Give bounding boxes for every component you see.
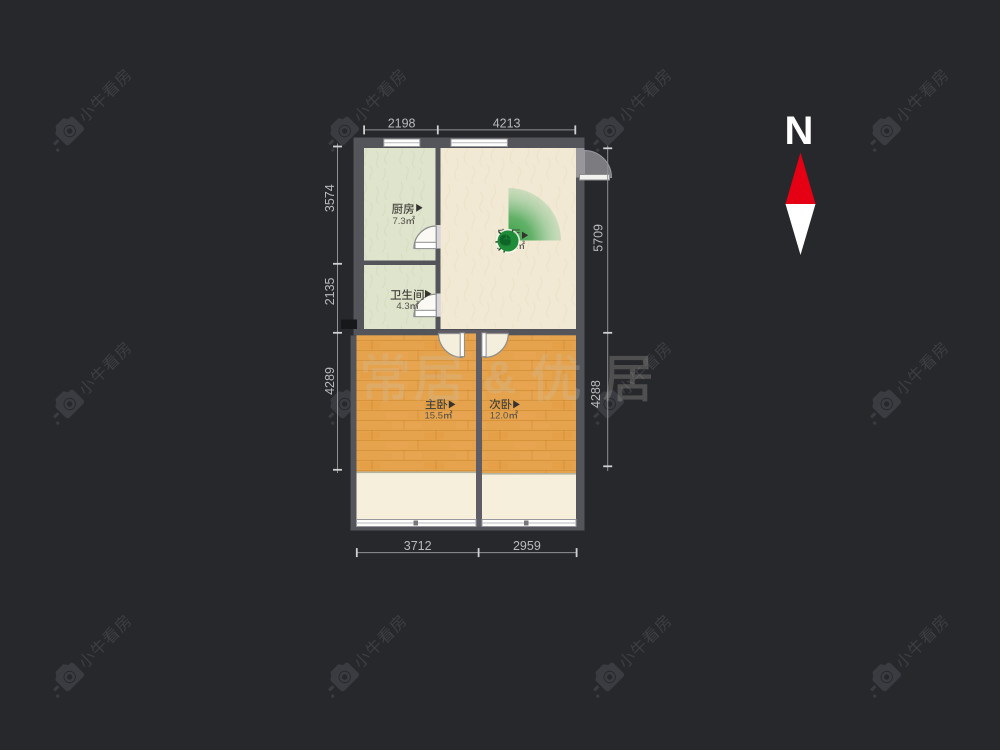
svg-text:4288: 4288 [589,380,603,408]
svg-text:3574: 3574 [323,184,337,212]
svg-text:3712: 3712 [404,539,432,553]
svg-text:2198: 2198 [388,117,416,131]
svg-text:2135: 2135 [323,277,337,305]
svg-text:7.3: 7.3 [393,216,406,227]
svg-text:4289: 4289 [323,367,337,395]
svg-text:12.0: 12.0 [490,411,509,422]
svg-text:4213: 4213 [493,117,521,131]
svg-text:4.3: 4.3 [396,301,409,312]
svg-text:15.5: 15.5 [425,411,444,422]
svg-text:2959: 2959 [513,539,541,553]
svg-text:5709: 5709 [592,224,606,252]
svg-text:N: N [785,109,814,153]
svg-text:&: & [483,351,516,403]
